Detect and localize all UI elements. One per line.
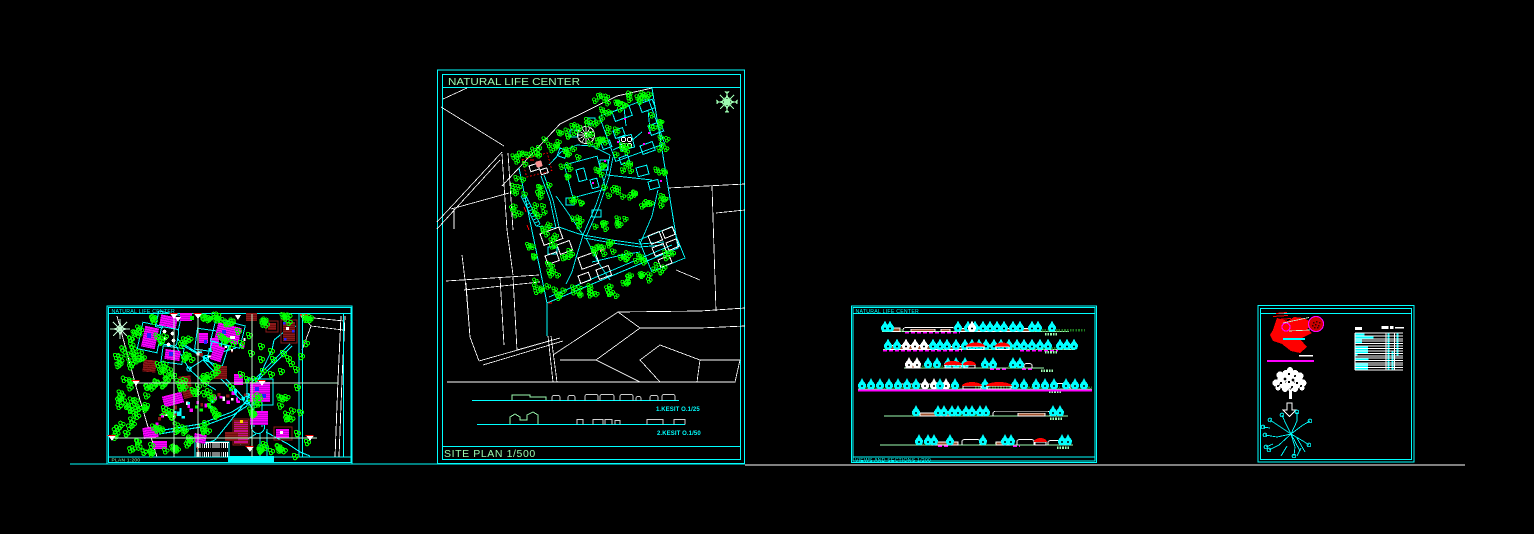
svg-text:SITE PLAN 1/500: SITE PLAN 1/500 (444, 448, 536, 460)
svg-text:NATURAL LIFE CENTER: NATURAL LIFE CENTER (448, 76, 580, 88)
svg-text:1.KESIT O.1/25: 1.KESIT O.1/25 (656, 407, 700, 413)
svg-text:2.KESIT O.1/50: 2.KESIT O.1/50 (657, 431, 701, 437)
svg-text:NATURAL LIFE CENTER: NATURAL LIFE CENTER (856, 309, 920, 315)
svg-text:PLAN 1:200: PLAN 1:200 (112, 458, 141, 464)
svg-text:VIEWS AND SECTIONS 1/200: VIEWS AND SECTIONS 1/200 (855, 458, 931, 464)
